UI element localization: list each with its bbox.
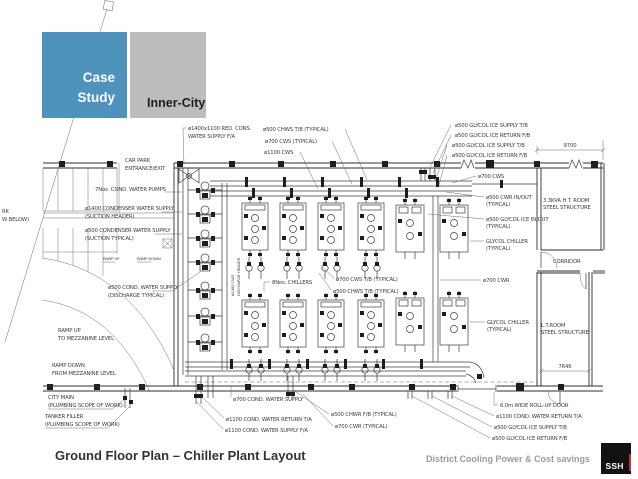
label-glycol-supply-1: ø500 GLYCOL ICE SUPPLY T/B bbox=[455, 123, 528, 129]
footer-caption: District Cooling Power & Cost savings bbox=[426, 454, 590, 464]
chw-pump-pair bbox=[362, 257, 380, 279]
label-cond-supply-1100: ø1100 COND. WATER SUPPLY F/A bbox=[225, 428, 308, 434]
reducer-intake bbox=[179, 169, 199, 183]
piping bbox=[123, 168, 537, 408]
label-pumps: 7Nos. COND. WATER PUMPS bbox=[95, 187, 167, 193]
label-glycol-supply-2: ø500 GLYCOL ICE SUPPLY T/B bbox=[452, 143, 525, 149]
label-reducer-line2: WATER SUPPLY F/A bbox=[188, 134, 235, 140]
label-city-main-2: (PLUMBING SCOPE OF WORK) bbox=[48, 403, 123, 409]
label-chws-tb-500: ø500 CHWS T/B (TYPICAL) bbox=[333, 289, 399, 295]
label-cond-return-1100: ø1100 COND. WATER RETURN T/A bbox=[496, 414, 582, 420]
ssh-logo: SSH bbox=[601, 443, 631, 474]
label-cwr700: ø700 CWR bbox=[483, 278, 510, 284]
case-study-line2: Study bbox=[77, 88, 115, 108]
label-glycol-return-1: ø500 GLYCOL ICE RETURN F/B bbox=[455, 133, 531, 139]
case-study-line1: Case bbox=[83, 68, 115, 88]
label-tanker-filler-2: (PLUMBING SCOPE OF WORK) bbox=[45, 422, 120, 428]
chw-pump-pair bbox=[284, 257, 302, 279]
label-cond-discharge-2: (DISCHARGE TYPICAL) bbox=[108, 293, 164, 299]
label-cond-supply-header-1: ø1400 CONDENSER WATER SUPPLY bbox=[85, 206, 175, 212]
inner-city-box: Inner-City bbox=[130, 32, 206, 118]
label-ramp-down-1: RAMP DOWN bbox=[52, 363, 85, 369]
chw-pump-pair bbox=[322, 257, 340, 279]
label-tanker-filler-1: TANKER FILLER bbox=[44, 414, 84, 420]
label-glycol-supply-3: ø500 GLYCOL ICE SUPPLY T/B bbox=[494, 425, 567, 431]
label-glycol-chiller-1a: GLYCOL CHILLER bbox=[486, 239, 528, 245]
pump-symbol bbox=[188, 308, 222, 325]
label-glycol-return-2: ø500 GLYCOL ICE RETURN F/B bbox=[452, 153, 528, 159]
roll-up-door bbox=[457, 385, 497, 392]
label-ht-room-2: STEEL STRUCTURE bbox=[543, 205, 591, 211]
ssh-logo-red-accent bbox=[629, 454, 632, 471]
slide: ø1400x1100 RED. CONS. WATER SUPPLY F/A ø… bbox=[0, 0, 638, 479]
condenser-water-pumps bbox=[188, 182, 222, 351]
label-discharge-header-v1: ø1400 CWS bbox=[230, 274, 235, 296]
label-8-chillers: 8Nos. CHILLERS bbox=[272, 280, 313, 286]
label-cutoff-2: W BELOW) bbox=[2, 217, 29, 223]
label-ht-room-1: 3.3KVA H.T. ROOM bbox=[543, 198, 590, 204]
label-cws1100: ø1100 CWS bbox=[264, 150, 294, 156]
chiller-unit bbox=[280, 196, 306, 257]
label-ramp-up-1: RAMP UP bbox=[58, 328, 82, 334]
label-cws700-typical: ø700 CWS (TYPICAL) bbox=[265, 139, 317, 145]
glycol-chiller-unit bbox=[440, 291, 468, 352]
chiller-unit bbox=[318, 196, 344, 257]
dimension-9700-value: 9700 bbox=[564, 143, 578, 149]
label-glycol-chiller-2b: (TYPICAL) bbox=[487, 327, 511, 333]
label-ramp-up-small: RAMP UP bbox=[103, 256, 120, 261]
pump-symbol bbox=[188, 334, 222, 351]
label-rollup-door: 6.0m WIDE ROLL-UP DOOR bbox=[500, 403, 569, 409]
glycol-chiller-unit bbox=[440, 198, 468, 259]
label-glycol-return-3: ø500 GLYCOL ICE RETURN F/B bbox=[492, 436, 568, 442]
page-title: Ground Floor Plan – Chiller Plant Layout bbox=[55, 448, 306, 463]
label-glycol-inout-1: ø500 GLYCOL ICE IN/OUT bbox=[486, 217, 549, 223]
inner-city-label: Inner-City bbox=[147, 96, 205, 110]
pump-symbol bbox=[188, 254, 222, 271]
label-chws500: ø500 CHWS T/B (TYPICAL) bbox=[263, 127, 329, 133]
pump-symbol bbox=[188, 182, 222, 199]
label-glycol-chiller-1b: (TYPICAL) bbox=[486, 246, 510, 252]
label-cwr-inout-2: (TYPICAL) bbox=[486, 202, 510, 208]
label-chwr500: ø500 CHWR F/B (TYPICAL) bbox=[331, 412, 397, 418]
car-park-area bbox=[42, 161, 174, 392]
label-ramp-down-small: RAMP DOWN bbox=[137, 256, 161, 261]
label-reducer-line1: ø1400x1100 RED. CONS. bbox=[188, 126, 252, 132]
label-ramp-down-2: FROM MEZZANINE LEVEL bbox=[52, 371, 116, 377]
label-cws700b: ø700 CWS bbox=[478, 174, 505, 180]
pump-symbol bbox=[188, 282, 222, 299]
pump-symbol bbox=[188, 206, 222, 223]
pump-symbol bbox=[188, 230, 222, 247]
label-cutoff-1: RK bbox=[2, 209, 10, 215]
chiller-unit bbox=[242, 196, 268, 257]
chiller-unit bbox=[358, 293, 384, 354]
label-cond-supply-header-2: (SUCTION HEADER) bbox=[85, 214, 134, 220]
chiller-unit bbox=[242, 293, 268, 354]
label-cond-supply-suction-1: ø500 CONDENSER WATER SUPPLY bbox=[85, 228, 171, 234]
label-cwr700b: ø700 CWR (TYPICAL) bbox=[335, 424, 387, 430]
label-cwr-inout-1: ø500 CWR IN/OUT bbox=[486, 195, 533, 201]
glycol-chiller-unit bbox=[396, 291, 424, 352]
label-lt-room-2: STEEL STRUCTURE bbox=[541, 330, 589, 336]
label-glycol-inout-2: (TYPICAL) bbox=[486, 224, 510, 230]
label-cws-tb-700: ø700 CWS T/B (TYPICAL) bbox=[336, 277, 398, 283]
chw-pump-pair bbox=[246, 257, 264, 279]
label-cond-return-1100b: ø1100 COND. WATER RETURN T/A bbox=[226, 417, 312, 423]
label-glycol-chiller-2a: GLYCOL CHILLER bbox=[487, 320, 529, 326]
case-study-box: Case Study bbox=[42, 32, 127, 118]
label-discharge-header-v2: DISCHARGE HEADER bbox=[236, 257, 241, 296]
glycol-chiller-unit bbox=[396, 198, 424, 259]
label-car-park-2: ENTRANCE/EXIT bbox=[125, 166, 166, 172]
label-city-main-1: CITY MAIN bbox=[48, 395, 74, 401]
chiller-unit bbox=[358, 196, 384, 257]
ssh-logo-text: SSH bbox=[601, 461, 628, 471]
label-lt-room-1: L.T.ROOM bbox=[541, 323, 566, 329]
label-cond-supply-suction-2: (SUCTION TYPICAL) bbox=[85, 236, 134, 242]
dimension-7646-value: 7646 bbox=[559, 364, 573, 370]
label-corridor: CORRIDOR bbox=[553, 259, 581, 265]
label-cond-supply-700: ø700 COND. WATER SUPPLY bbox=[233, 397, 304, 403]
label-car-park-1: CAR PARK bbox=[125, 158, 151, 164]
chiller-unit bbox=[318, 293, 344, 354]
label-cond-discharge-1: ø500 COND. WATER SUPPLY bbox=[108, 285, 179, 291]
chiller-unit bbox=[280, 293, 306, 354]
label-ramp-up-2: TO MEZZANINE LEVEL bbox=[57, 336, 114, 342]
